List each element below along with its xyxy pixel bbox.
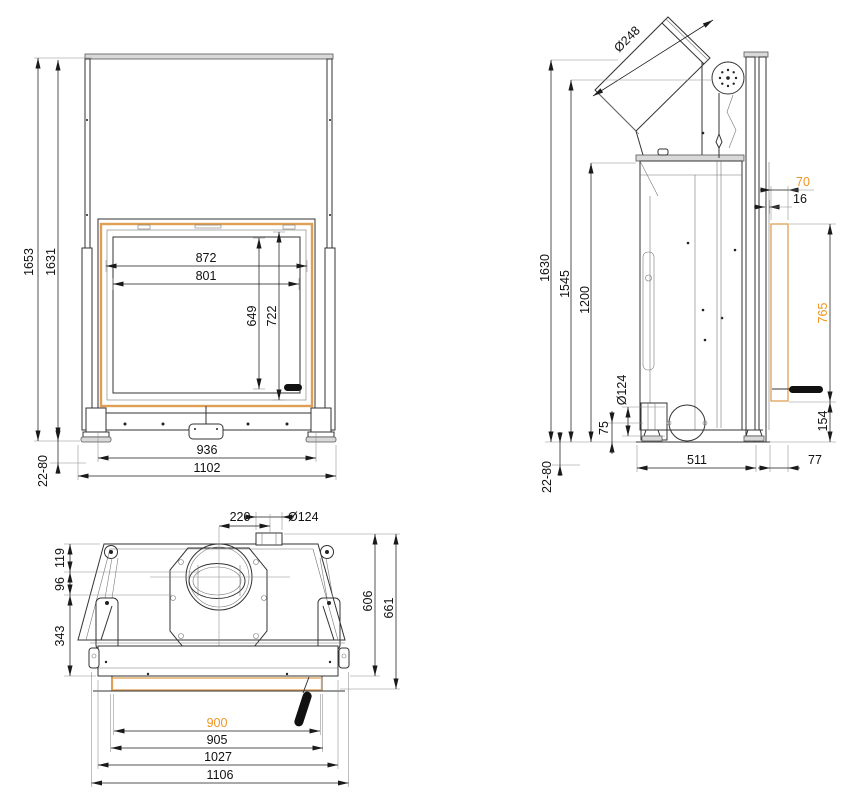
dim-front-opening-height: 649 bbox=[245, 306, 259, 327]
dim-front-total-height: 1653 bbox=[22, 248, 36, 276]
dim-top-collar-offset: 96 bbox=[53, 577, 67, 591]
dim-top-body-depth: 343 bbox=[53, 626, 67, 647]
body-top-plate bbox=[636, 155, 744, 161]
dim-top-air-diameter: Ø124 bbox=[288, 510, 319, 524]
dim-top-total-width: 1106 bbox=[207, 768, 234, 782]
dim-side-front-offset: 77 bbox=[808, 453, 822, 467]
dim-top-frame-depth: 606 bbox=[361, 591, 375, 612]
flue-pipe bbox=[595, 17, 710, 134]
right-foot bbox=[306, 408, 336, 442]
technical-drawing: 1653 1631 22-80 872 801 649 722 936 1102 bbox=[0, 0, 858, 795]
door-handle-top bbox=[293, 690, 313, 727]
dim-front-glass-height: 722 bbox=[265, 306, 279, 327]
dim-side-flue-diameter: Ø248 bbox=[611, 23, 643, 55]
dim-side-base-depth: 511 bbox=[687, 453, 707, 467]
dim-front-frame-height: 1631 bbox=[44, 248, 58, 276]
dim-top-frame-width: 1027 bbox=[204, 750, 232, 764]
door-handle-front bbox=[284, 384, 302, 391]
right-bracket bbox=[325, 248, 335, 430]
body-side bbox=[640, 161, 742, 430]
dim-side-rail-depth: 16 bbox=[793, 192, 807, 206]
glass-strip-accent bbox=[113, 678, 322, 690]
dim-front-base-width: 936 bbox=[197, 443, 218, 457]
side-view: Ø248 1630 1545 1200 70 16 765 154 Ø124 bbox=[538, 17, 836, 493]
dim-front-opening-width: 801 bbox=[196, 269, 217, 283]
air-duct-stub bbox=[256, 533, 282, 545]
wall-rail-front bbox=[759, 57, 766, 442]
dim-side-bottom-height: 154 bbox=[816, 411, 830, 432]
top-crossbar bbox=[85, 54, 333, 59]
dim-side-height-pulley: 1545 bbox=[558, 270, 572, 298]
dim-top-glass-width: 900 bbox=[207, 716, 228, 730]
fireplace-dimension-drawing: 1653 1631 22-80 872 801 649 722 936 1102 bbox=[0, 0, 858, 795]
left-foot bbox=[81, 408, 111, 442]
dim-side-door-height: 765 bbox=[816, 303, 830, 324]
glass-door-edge bbox=[771, 224, 788, 401]
dim-top-lug-depth: 119 bbox=[53, 548, 67, 568]
dim-front-total-width: 1102 bbox=[194, 461, 221, 475]
dim-side-height-flue: 1630 bbox=[538, 254, 552, 282]
front-frame-bar bbox=[98, 646, 338, 676]
dim-side-door-depth: 70 bbox=[796, 175, 810, 189]
dim-top-flue-offset: 220 bbox=[230, 510, 251, 524]
dim-side-air-diameter: Ø124 bbox=[615, 375, 629, 406]
dim-side-foot-adjust: 22-80 bbox=[540, 461, 554, 493]
wall-rail-rear bbox=[746, 57, 755, 442]
dim-top-total-depth: 661 bbox=[382, 598, 396, 619]
firebox-body bbox=[98, 219, 315, 413]
left-bracket bbox=[82, 248, 92, 430]
cable-hook bbox=[716, 134, 722, 148]
dim-side-height-body: 1200 bbox=[578, 286, 592, 314]
door-handle-side bbox=[789, 386, 823, 393]
front-view: 1653 1631 22-80 872 801 649 722 936 1102 bbox=[22, 54, 336, 487]
dim-side-air-height: 75 bbox=[597, 421, 611, 435]
top-view: Ø124 220 119 96 343 606 661 900 905 1027 bbox=[53, 510, 400, 787]
base-latch bbox=[189, 424, 223, 439]
pulley bbox=[712, 62, 744, 94]
dim-front-glass-width: 872 bbox=[196, 251, 217, 265]
dim-front-foot-adjust: 22-80 bbox=[36, 455, 50, 487]
dim-top-opening-width: 905 bbox=[207, 733, 228, 747]
